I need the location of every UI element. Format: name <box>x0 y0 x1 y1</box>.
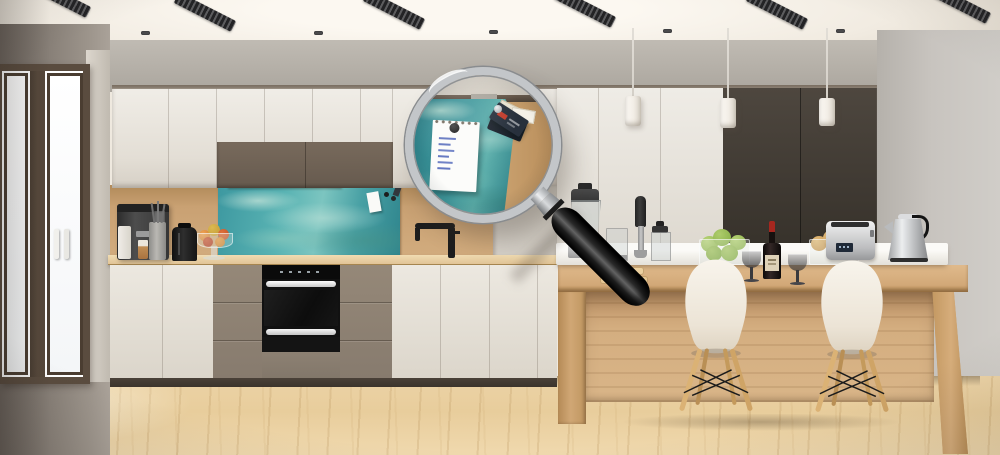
oven-glass <box>264 290 338 326</box>
magnet-dot <box>384 192 389 197</box>
toaster-lever <box>870 230 874 237</box>
ceiling-vent <box>929 0 991 24</box>
ceiling-vent <box>554 0 616 28</box>
pendant-light <box>720 98 736 128</box>
cabinet-seam <box>489 265 490 378</box>
ceiling-vent <box>363 0 425 30</box>
faucet <box>410 221 460 261</box>
oven-handle <box>266 329 336 335</box>
pendant-cord <box>632 28 634 96</box>
stand-foot <box>203 256 225 260</box>
black-kettle <box>172 227 197 261</box>
drawer-under-oven <box>262 352 340 378</box>
window-handle <box>64 229 69 259</box>
pendant-cord <box>727 28 729 98</box>
window <box>0 64 90 384</box>
oven-drawer <box>262 337 340 352</box>
cabinet-seam <box>800 88 801 246</box>
kettle-lid <box>178 223 191 228</box>
whisk <box>157 201 159 223</box>
cabinet-seam <box>168 88 169 188</box>
chair <box>670 256 762 412</box>
ceiling-spotlight <box>836 29 845 33</box>
ceiling-vent <box>29 0 91 18</box>
stick-blender <box>634 196 648 260</box>
kettle-spout <box>884 221 893 234</box>
ceiling-vent <box>746 0 808 30</box>
cabinet-seam <box>360 88 361 142</box>
ceiling-spotlight <box>141 31 150 35</box>
drawer-stack-left <box>213 265 262 378</box>
faucet-lever <box>454 231 460 234</box>
base-cabinet-white-left <box>110 265 213 378</box>
ceiling-spotlight <box>489 30 498 34</box>
chair-shell <box>821 261 882 355</box>
base-cabinet-white-right <box>392 265 557 378</box>
toaster-slot <box>831 222 869 227</box>
oven-control-panel <box>262 265 340 279</box>
magnet-dot <box>391 196 396 201</box>
island-floor-shadow <box>575 414 947 434</box>
window-pane-right <box>47 73 83 375</box>
cabinet-seam <box>264 88 265 142</box>
cabinet-seam <box>537 265 538 378</box>
window-handle <box>54 229 59 259</box>
stick-bell <box>634 250 647 258</box>
display-digits <box>839 246 850 248</box>
cabinet-seam <box>305 142 306 188</box>
oven <box>262 265 340 352</box>
drawer-stack-right <box>340 265 392 378</box>
label-line <box>768 259 776 261</box>
glass-bowl-part <box>788 254 807 271</box>
cabinet-seam <box>440 265 441 378</box>
chair <box>806 257 898 413</box>
kitchen-photo <box>0 0 1000 455</box>
toaster-display <box>836 243 853 252</box>
wine-glass <box>788 254 807 286</box>
label-line <box>768 263 776 265</box>
chair-shell <box>685 260 746 354</box>
milk-tank <box>118 226 131 259</box>
toe-kick <box>110 378 557 387</box>
cabinet-seam <box>312 88 313 142</box>
cabinet-seam <box>162 265 163 378</box>
ceiling-spotlight <box>314 31 323 35</box>
drawer-seam <box>340 340 392 341</box>
bottle-label <box>765 255 779 271</box>
food-processor <box>650 221 670 259</box>
glass-stem <box>796 270 799 282</box>
toaster <box>826 221 875 260</box>
drawer-seam <box>213 340 262 341</box>
drawer-seam <box>340 302 392 303</box>
faucet-spout <box>415 228 420 241</box>
stick-shaft <box>638 226 644 251</box>
steel-kettle <box>884 211 934 262</box>
pendant-light <box>819 98 835 126</box>
oven-handle <box>266 281 336 287</box>
upper-cabinet-brown <box>217 142 393 188</box>
pendant-cord <box>826 28 828 98</box>
latte-glass <box>138 240 148 259</box>
wine-bottle <box>763 221 781 279</box>
window-pane-left <box>4 73 28 375</box>
utensil-crock <box>149 222 166 260</box>
ceiling-vent <box>174 0 236 32</box>
stick-handle <box>635 196 646 227</box>
faucet-arm <box>415 223 455 229</box>
island-left-leg <box>558 290 586 424</box>
fruit-stand <box>197 222 231 260</box>
drawer-seam <box>213 302 262 303</box>
pendant-light <box>625 96 641 126</box>
oven-control-icons <box>280 271 322 273</box>
ceiling-spotlight <box>663 29 672 33</box>
kettle-highlight <box>178 233 180 255</box>
glass-foot <box>790 282 805 285</box>
window-stile <box>30 71 45 377</box>
processor-bowl <box>651 232 671 261</box>
